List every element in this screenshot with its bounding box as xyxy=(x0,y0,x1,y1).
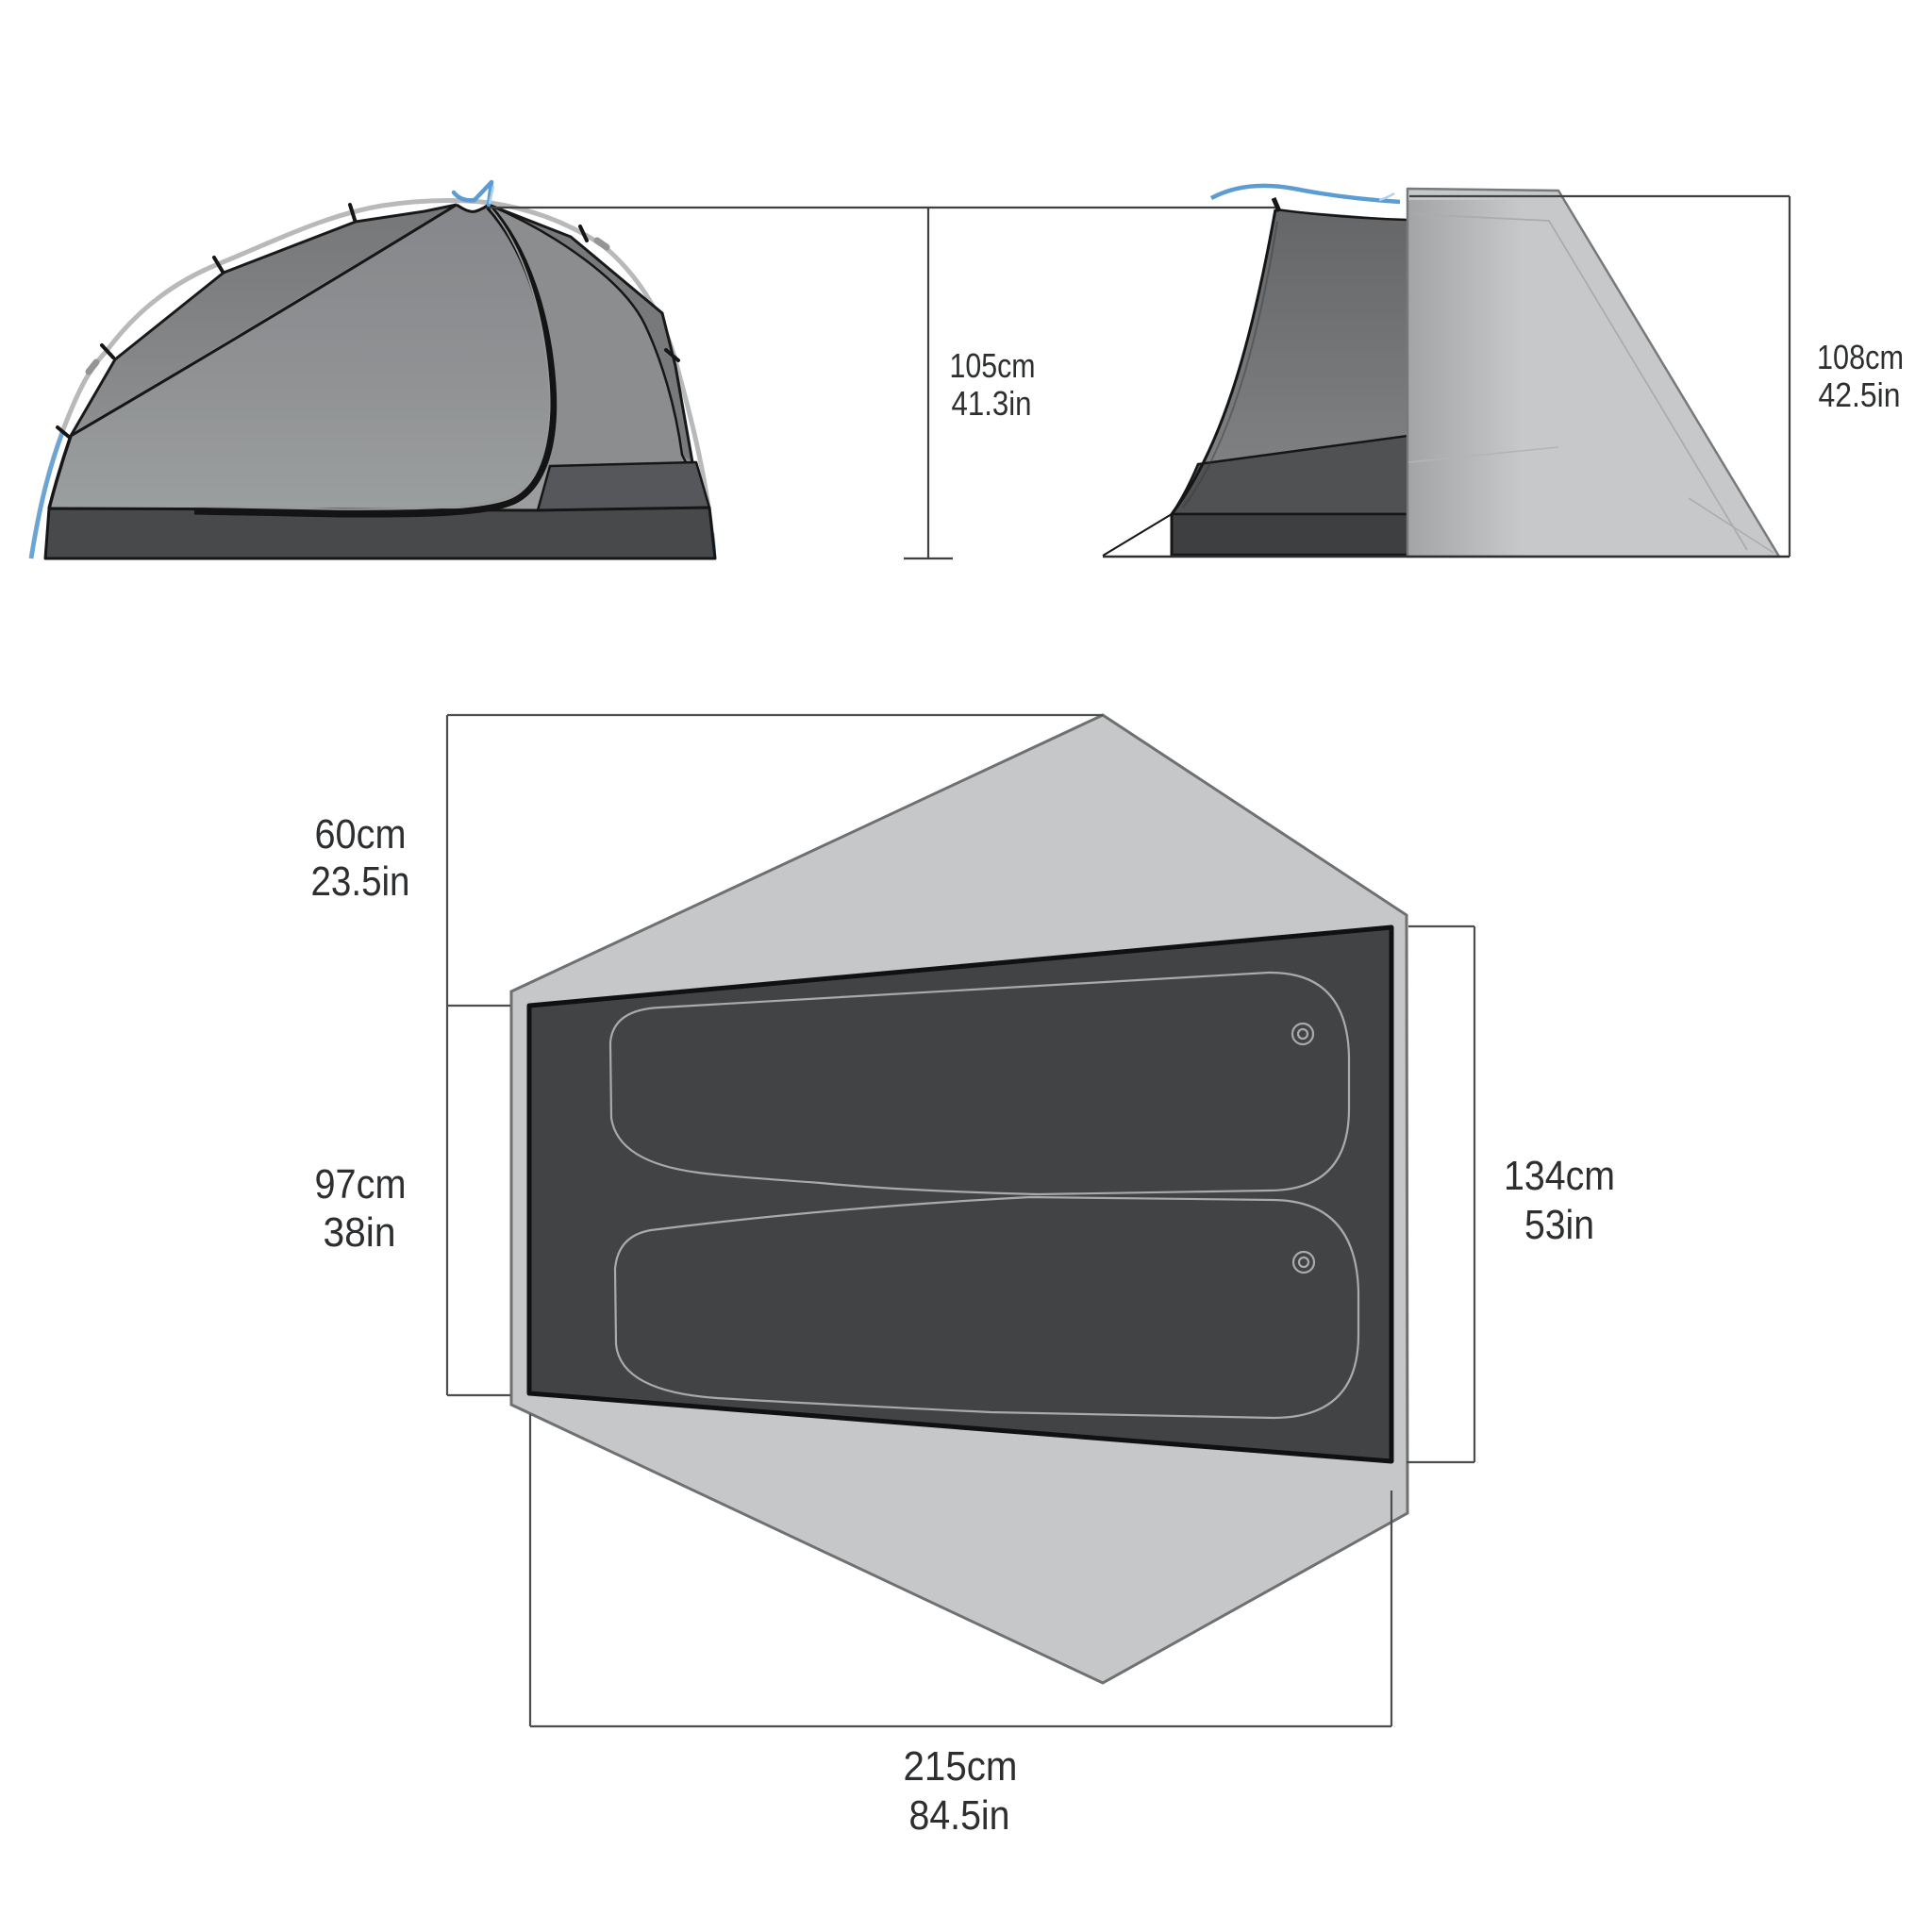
svg-text:84.5in: 84.5in xyxy=(909,1792,1010,1839)
svg-text:215cm: 215cm xyxy=(904,1743,1018,1790)
svg-text:53in: 53in xyxy=(1524,1202,1594,1248)
svg-text:38in: 38in xyxy=(324,1209,396,1256)
svg-text:60cm: 60cm xyxy=(315,811,407,858)
svg-text:108cm: 108cm xyxy=(1817,338,1904,376)
svg-text:134cm: 134cm xyxy=(1504,1153,1615,1199)
svg-text:97cm: 97cm xyxy=(315,1161,407,1207)
svg-text:42.5in: 42.5in xyxy=(1819,375,1901,414)
svg-text:105cm: 105cm xyxy=(950,346,1036,385)
svg-text:41.3in: 41.3in xyxy=(952,384,1032,423)
svg-text:23.5in: 23.5in xyxy=(311,858,410,905)
